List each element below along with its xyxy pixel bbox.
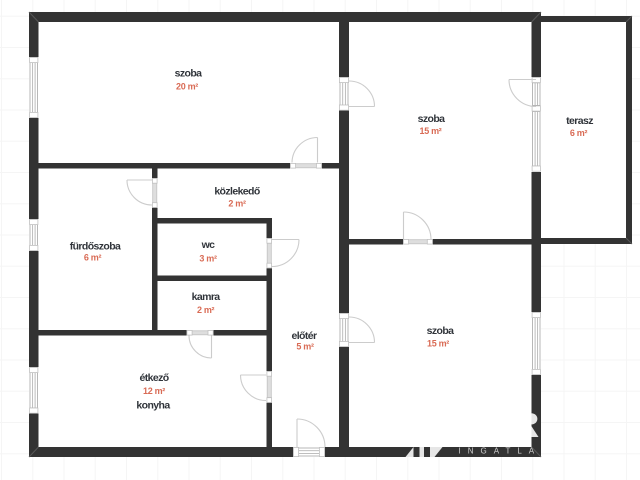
svg-text:12 m²: 12 m² (143, 386, 165, 396)
svg-text:20 m²: 20 m² (176, 82, 198, 92)
svg-text:6 m²: 6 m² (84, 253, 102, 263)
svg-text:INGATLAN: INGATLAN (459, 447, 554, 456)
svg-text:szoba: szoba (175, 68, 203, 80)
svg-text:előtér: előtér (292, 330, 318, 342)
svg-text:konyha: konyha (136, 400, 170, 412)
svg-text:étkező: étkező (139, 372, 168, 384)
svg-text:2 m²: 2 m² (228, 199, 246, 209)
svg-text:kamra: kamra (192, 291, 221, 303)
svg-text:6 m²: 6 m² (570, 128, 588, 138)
svg-text:wc: wc (201, 239, 216, 251)
svg-text:terasz: terasz (566, 115, 593, 127)
svg-text:2 m²: 2 m² (197, 305, 215, 315)
svg-text:15 m²: 15 m² (427, 339, 449, 349)
svg-text:3 m²: 3 m² (199, 254, 217, 264)
svg-text:fürdőszoba: fürdőszoba (70, 241, 121, 253)
svg-text:közlekedő: közlekedő (214, 186, 260, 198)
svg-text:szoba: szoba (427, 325, 455, 337)
svg-text:5 m²: 5 m² (296, 342, 314, 352)
svg-text:15 m²: 15 m² (419, 126, 441, 136)
svg-text:szoba: szoba (418, 113, 446, 125)
